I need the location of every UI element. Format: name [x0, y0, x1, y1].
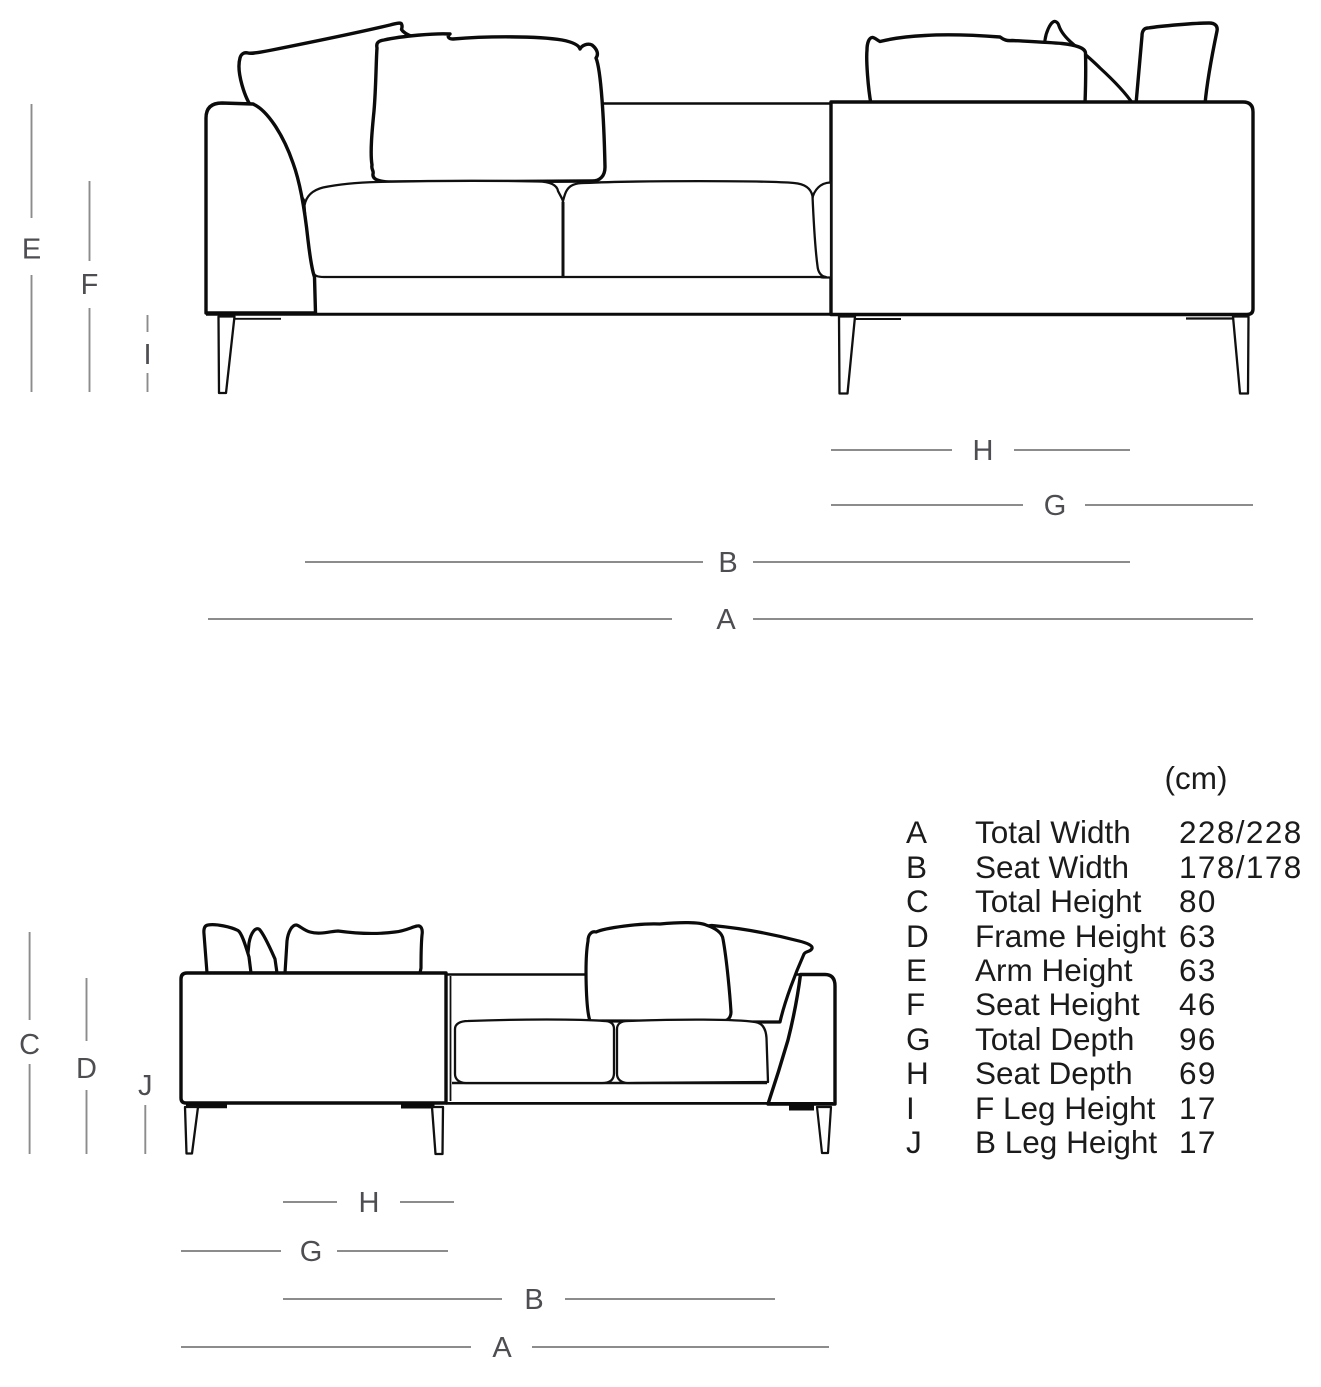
svg-text:F: F: [81, 269, 99, 301]
svg-text:J: J: [138, 1070, 153, 1102]
svg-text:17: 17: [1179, 1124, 1217, 1160]
svg-text:F: F: [906, 986, 925, 1022]
svg-text:Total Height: Total Height: [975, 883, 1142, 919]
svg-text:46: 46: [1179, 986, 1217, 1022]
svg-text:B Leg Height: B Leg Height: [975, 1124, 1157, 1160]
svg-text:I: I: [143, 339, 151, 371]
svg-text:17: 17: [1179, 1090, 1217, 1126]
svg-text:C: C: [906, 883, 929, 919]
svg-text:A: A: [492, 1332, 512, 1364]
svg-text:63: 63: [1179, 952, 1217, 988]
svg-text:I: I: [906, 1090, 915, 1126]
svg-text:96: 96: [1179, 1021, 1217, 1057]
svg-text:69: 69: [1179, 1055, 1217, 1091]
svg-text:E: E: [906, 952, 927, 988]
svg-text:G: G: [300, 1236, 323, 1268]
svg-text:H: H: [973, 435, 994, 467]
svg-text:A: A: [716, 604, 736, 636]
svg-text:Frame Height: Frame Height: [975, 918, 1166, 954]
svg-text:Arm Height: Arm Height: [975, 952, 1133, 988]
svg-text:63: 63: [1179, 918, 1217, 954]
svg-text:B: B: [718, 547, 737, 579]
svg-text:C: C: [19, 1029, 40, 1061]
svg-text:(cm): (cm): [1165, 760, 1228, 796]
svg-text:B: B: [906, 849, 927, 885]
svg-text:Seat Width: Seat Width: [975, 849, 1129, 885]
svg-text:G: G: [906, 1021, 931, 1057]
svg-text:228/228: 228/228: [1179, 814, 1303, 850]
svg-text:Total Depth: Total Depth: [975, 1021, 1134, 1057]
svg-text:G: G: [1044, 490, 1067, 522]
svg-text:D: D: [906, 918, 929, 954]
svg-text:F Leg Height: F Leg Height: [975, 1090, 1156, 1126]
svg-text:D: D: [76, 1053, 97, 1085]
svg-text:178/178: 178/178: [1179, 849, 1303, 885]
svg-text:Seat Depth: Seat Depth: [975, 1055, 1133, 1091]
svg-text:B: B: [524, 1284, 543, 1316]
svg-text:80: 80: [1179, 883, 1217, 919]
svg-text:H: H: [906, 1055, 929, 1091]
svg-text:A: A: [906, 814, 927, 850]
svg-text:Total Width: Total Width: [975, 814, 1131, 850]
svg-text:E: E: [22, 234, 41, 266]
svg-text:Seat Height: Seat Height: [975, 986, 1140, 1022]
svg-text:J: J: [906, 1124, 922, 1160]
svg-text:H: H: [359, 1187, 380, 1219]
